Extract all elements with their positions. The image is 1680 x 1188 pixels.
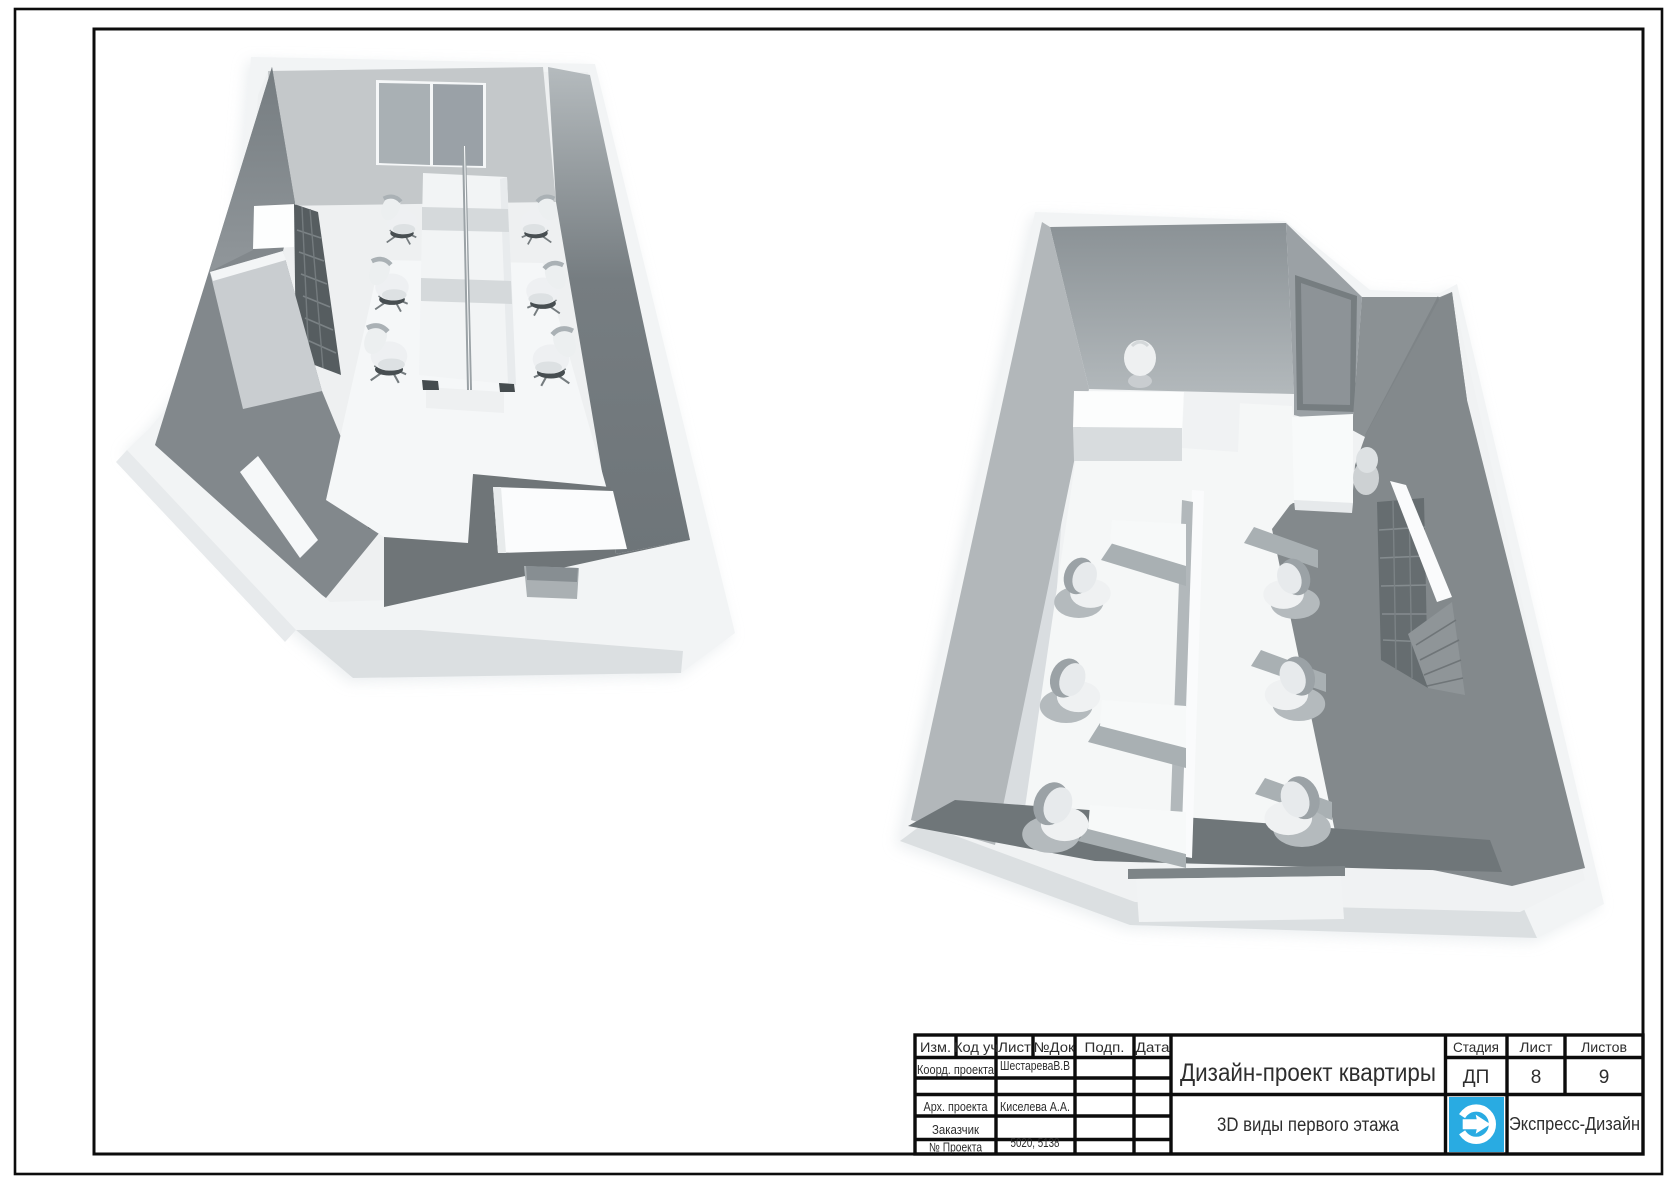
svg-text:Дата: Дата: [1136, 1039, 1170, 1055]
svg-text:Листов: Листов: [1581, 1039, 1627, 1055]
svg-text:Арх. проекта: Арх. проекта: [924, 1100, 988, 1114]
svg-text:Заказчик: Заказчик: [932, 1123, 979, 1137]
svg-text:9: 9: [1599, 1067, 1610, 1088]
svg-text:Подп.: Подп.: [1085, 1039, 1125, 1055]
svg-text:Киселева А.А.: Киселева А.А.: [1000, 1100, 1070, 1114]
svg-text:Лист: Лист: [998, 1039, 1032, 1055]
svg-text:Экспресс-Дизайн: Экспресс-Дизайн: [1509, 1114, 1640, 1134]
svg-text:Лист: Лист: [1520, 1039, 1554, 1055]
svg-text:8: 8: [1531, 1067, 1542, 1088]
svg-text:5020, 5138: 5020, 5138: [1011, 1136, 1060, 1150]
svg-text:3D виды первого этажа: 3D виды первого этажа: [1217, 1115, 1399, 1136]
svg-text:№ Проекта: № Проекта: [929, 1141, 982, 1155]
svg-text:Стадия: Стадия: [1453, 1039, 1499, 1055]
svg-text:Коорд. проекта: Коорд. проекта: [917, 1063, 994, 1077]
svg-text:ДП: ДП: [1463, 1067, 1490, 1088]
svg-text:№Док: №Док: [1034, 1039, 1076, 1055]
svg-text:ШестареваВ.В: ШестареваВ.В: [1000, 1059, 1070, 1073]
svg-text:Дизайн-проект квартиры: Дизайн-проект квартиры: [1180, 1059, 1436, 1087]
svg-text:Изм.: Изм.: [920, 1039, 951, 1055]
svg-text:Код уч: Код уч: [954, 1039, 998, 1055]
